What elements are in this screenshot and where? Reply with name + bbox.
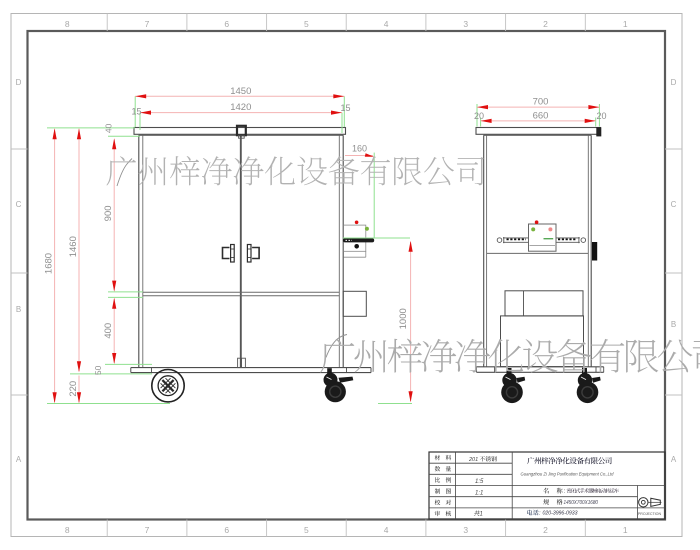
svg-text:2: 2 — [543, 19, 548, 29]
svg-text:15: 15 — [131, 107, 141, 117]
svg-text:6: 6 — [224, 525, 229, 535]
svg-text:Guangzhou Zi Jing Purification: Guangzhou Zi Jing Purification Equipment… — [521, 472, 615, 477]
svg-text:40: 40 — [103, 123, 113, 133]
svg-text:20: 20 — [474, 111, 484, 121]
svg-text:4: 4 — [384, 19, 389, 29]
svg-text:D: D — [671, 78, 677, 87]
svg-text:50: 50 — [93, 365, 103, 375]
svg-text:B: B — [671, 320, 676, 329]
svg-text:B: B — [16, 305, 21, 314]
svg-text:A: A — [16, 455, 22, 464]
svg-text::: : — [564, 489, 566, 495]
svg-text:C: C — [16, 200, 22, 209]
svg-text:8: 8 — [65, 19, 70, 29]
svg-text:400: 400 — [103, 323, 114, 339]
svg-text:1450X700X1680: 1450X700X1680 — [564, 500, 599, 506]
svg-text:7: 7 — [145, 525, 150, 535]
svg-text:1000: 1000 — [398, 308, 409, 329]
svg-text:15: 15 — [340, 103, 350, 113]
svg-text:4: 4 — [384, 525, 389, 535]
svg-text:160: 160 — [352, 144, 367, 154]
svg-text:共1: 共1 — [474, 511, 483, 518]
svg-text:1: 1 — [623, 19, 628, 29]
svg-text:220: 220 — [68, 381, 79, 397]
svg-text:6: 6 — [224, 19, 229, 29]
svg-text:1:1: 1:1 — [475, 490, 483, 496]
svg-text:1:5: 1:5 — [475, 479, 484, 485]
svg-text:1460: 1460 — [68, 236, 79, 257]
svg-text:8: 8 — [65, 525, 70, 535]
svg-text:1680: 1680 — [44, 253, 55, 274]
svg-text:900: 900 — [103, 205, 114, 221]
svg-text:7: 7 — [145, 19, 150, 29]
svg-text:1420: 1420 — [230, 102, 251, 113]
svg-text:3: 3 — [463, 19, 468, 29]
svg-text:5: 5 — [304, 19, 309, 29]
svg-text:5: 5 — [304, 525, 309, 535]
svg-text:020-3996-0933: 020-3996-0933 — [543, 511, 578, 517]
svg-text:660: 660 — [533, 110, 549, 121]
svg-text:20: 20 — [596, 111, 606, 121]
svg-text:201: 201 — [468, 457, 478, 463]
svg-text:1: 1 — [623, 525, 628, 535]
svg-text:1450: 1450 — [230, 86, 251, 97]
svg-text:D: D — [16, 78, 22, 87]
svg-text:3: 3 — [463, 525, 468, 535]
svg-text:PROJECTION: PROJECTION — [638, 512, 662, 516]
svg-text:C: C — [671, 200, 677, 209]
svg-text:2: 2 — [543, 525, 548, 535]
svg-text:700: 700 — [533, 97, 549, 108]
svg-text:A: A — [671, 455, 677, 464]
